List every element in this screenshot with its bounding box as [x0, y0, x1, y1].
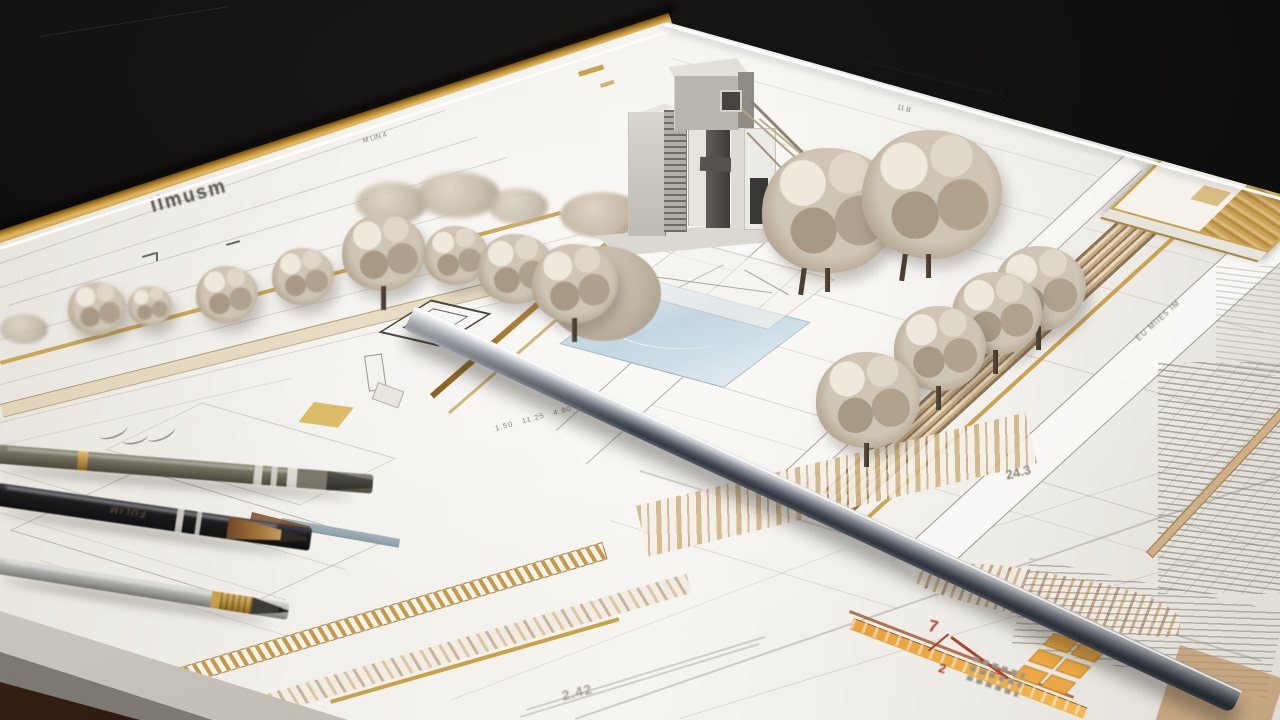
gold-dash-a: [578, 64, 604, 76]
model-tree: [532, 244, 618, 323]
model-tree: [862, 130, 1002, 259]
hedge-bush: [416, 172, 500, 218]
model-tree: [272, 248, 334, 305]
red-mark-7: 7: [926, 616, 940, 638]
pen-grip: [296, 469, 327, 490]
gold-dash-b: [600, 80, 615, 88]
column-white-b: [731, 126, 745, 228]
tick-a: [142, 252, 156, 258]
legend-card-chip: [1190, 185, 1231, 206]
photo-architectural-model-scene: 7 2 Ilmusm M LIN 4 11 B 1.50 11.25 4.80 …: [0, 0, 1280, 720]
model-tree: [196, 266, 258, 323]
note-top-left: M LIN 4: [362, 132, 387, 145]
spot-elevation-bottom: 2.42: [560, 680, 594, 703]
pen-silver-ring: [252, 465, 262, 485]
schedule-mini-rows: [965, 656, 1026, 702]
hatch-area-right-upper: [1216, 266, 1280, 376]
cube-window: [720, 90, 742, 112]
paper-model-bit-b: [372, 382, 404, 408]
hedge-bush: [488, 188, 548, 224]
tower-left-face: [628, 112, 666, 236]
hedge-bush: [0, 314, 48, 344]
tick-b: [226, 240, 240, 246]
core-dark-slab: [706, 116, 730, 228]
note-top-center: 11 B: [896, 104, 911, 114]
pen-gold-ring: [77, 451, 88, 471]
plan-line: [520, 643, 760, 718]
tan-square-marker: [298, 402, 353, 428]
model-tree: [816, 352, 920, 448]
tick-a2: [156, 252, 158, 261]
